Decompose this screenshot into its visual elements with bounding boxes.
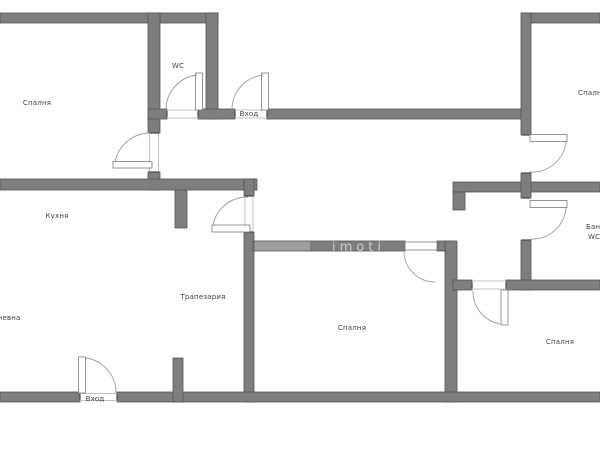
wall xyxy=(521,173,531,198)
door-arc-wc xyxy=(166,75,197,110)
wall xyxy=(148,109,167,119)
wall xyxy=(0,179,257,190)
watermark-text: imoti xyxy=(332,240,385,255)
door-arc-bedroom4 xyxy=(473,291,500,324)
door-panel-bath xyxy=(530,201,567,208)
wall xyxy=(175,190,187,228)
wall xyxy=(0,392,80,402)
door-panel-bedroom2 xyxy=(530,135,567,142)
door-arc-kitchen xyxy=(213,197,248,225)
label-bedroom-top-left: Спалня xyxy=(23,99,51,107)
label-wc: WC xyxy=(172,62,184,70)
door-sills xyxy=(80,110,530,401)
door-arc-dining xyxy=(404,252,435,282)
wall xyxy=(453,280,472,290)
door-arc-entry-bottom xyxy=(86,358,116,393)
wall xyxy=(506,280,600,290)
wall xyxy=(244,179,254,196)
wall xyxy=(173,358,183,402)
label-bedroom-top-right: Спалня xyxy=(578,89,600,97)
floorplan-drawing: imoti xyxy=(0,0,600,450)
label-dining: Трапезария xyxy=(180,293,225,301)
door-panel-kitchen xyxy=(212,225,250,232)
door-arc-bath xyxy=(530,208,566,239)
door-arc-bedroom1 xyxy=(115,133,150,162)
wall xyxy=(267,109,521,119)
label-bedroom-bottom-middle: Спалня xyxy=(338,324,366,332)
door-panel-dining xyxy=(405,242,437,250)
wall xyxy=(244,232,254,402)
label-entry-top: Вход xyxy=(240,110,259,118)
door-arc-bedroom2 xyxy=(530,142,566,172)
wall xyxy=(117,392,600,402)
wall xyxy=(206,13,218,119)
label-kitchen: Кухня xyxy=(45,212,68,220)
walls xyxy=(0,13,600,402)
label-bath-line1: Баня xyxy=(586,223,600,231)
floorplan-page: { "title": "Apartment floor plan", "colo… xyxy=(0,0,600,450)
wall xyxy=(0,13,218,23)
door-panel-wc xyxy=(196,73,203,110)
label-bedroom-bottom-right: Спалня xyxy=(546,338,574,346)
door-jambs xyxy=(80,111,530,400)
label-living: Дневна xyxy=(0,314,21,322)
door-panel-entry-bottom xyxy=(79,357,86,393)
wall xyxy=(521,13,531,135)
wall xyxy=(445,241,457,402)
door-arc-entry-top xyxy=(232,75,263,110)
label-entry-bottom: Вход xyxy=(86,395,105,403)
door-panel-bedroom4 xyxy=(501,290,508,325)
door-panel-entry-top xyxy=(262,73,269,110)
label-bath-line2: WC xyxy=(588,233,600,241)
wall xyxy=(198,109,235,119)
wall xyxy=(453,192,465,210)
door-panel-bedroom1 xyxy=(113,162,152,169)
wall xyxy=(522,13,600,23)
